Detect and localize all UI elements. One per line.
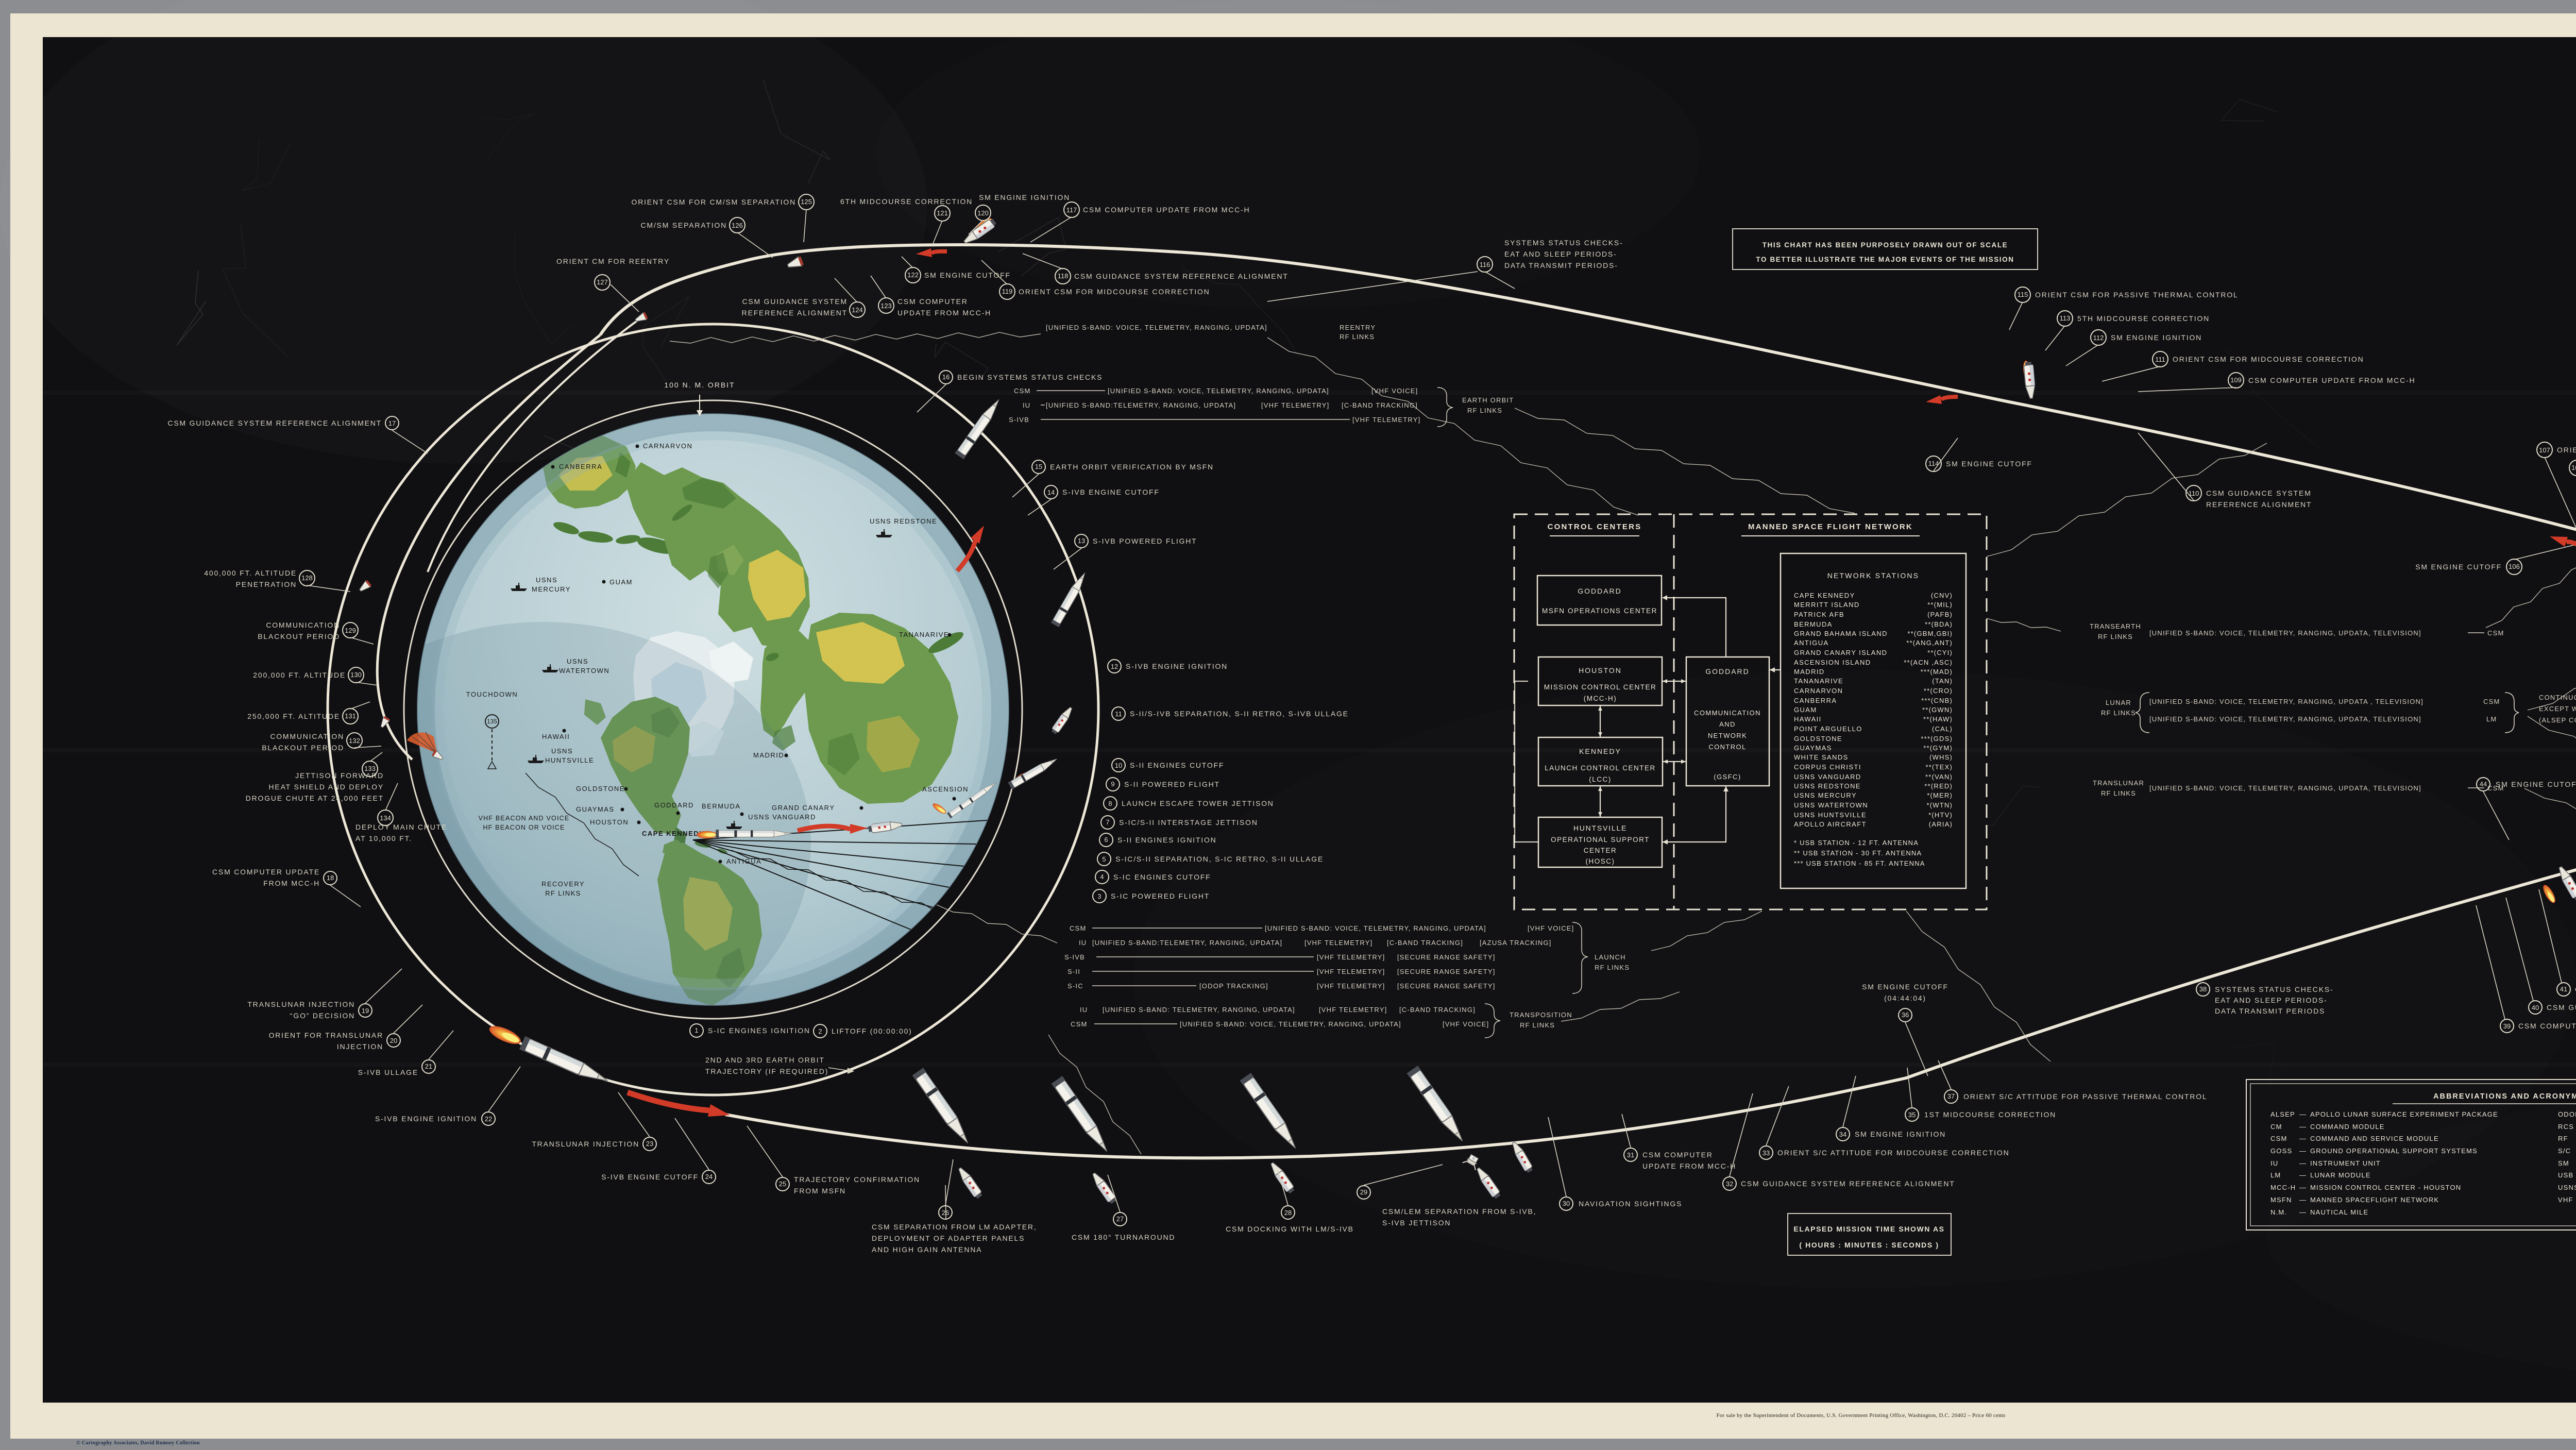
svg-text:[UNIFIED S-BAND:TELEMETRY, RAN: [UNIFIED S-BAND:TELEMETRY, RANGING, UPDA… (1092, 939, 1282, 947)
svg-text:USB: USB (2558, 1171, 2573, 1179)
svg-text:RF LINKS: RF LINKS (2101, 709, 2136, 717)
svg-text:16: 16 (942, 373, 950, 381)
svg-text:USNS VANGUARD: USNS VANGUARD (748, 813, 816, 821)
svg-text:REFERENCE ALIGNMENT: REFERENCE ALIGNMENT (742, 309, 848, 317)
svg-text:CANBERRA: CANBERRA (1794, 697, 1837, 704)
svg-text:20: 20 (390, 1037, 397, 1044)
svg-text:COMMAND AND SERVICE MODULE: COMMAND AND SERVICE MODULE (2310, 1135, 2439, 1142)
svg-text:JETTISON FORWARD: JETTISON FORWARD (295, 771, 384, 780)
svg-text:S-IVB ENGINE CUTOFF: S-IVB ENGINE CUTOFF (1062, 488, 1160, 496)
svg-text:ORIENT CSM FOR PASSIVE THERMAL: ORIENT CSM FOR PASSIVE THERMAL CONTROL (2035, 291, 2239, 299)
svg-text:34: 34 (1839, 1131, 1846, 1138)
svg-text:GODDARD: GODDARD (654, 801, 694, 809)
svg-text:LUNAR: LUNAR (2106, 699, 2131, 706)
svg-text:TRANSEARTH: TRANSEARTH (2090, 622, 2141, 630)
svg-text:***(GDS): ***(GDS) (1921, 735, 1953, 743)
svg-text:GUAYMAS: GUAYMAS (576, 805, 615, 813)
svg-text:TRANSPOSITION: TRANSPOSITION (1510, 1011, 1572, 1019)
svg-text:250,000 FT. ALTITUDE: 250,000 FT. ALTITUDE (247, 712, 340, 720)
svg-text:107: 107 (2539, 446, 2550, 454)
svg-text:GROUND OPERATIONAL SUPPORT SYS: GROUND OPERATIONAL SUPPORT SYSTEMS (2310, 1147, 2478, 1155)
svg-text:S-IC POWERED FLIGHT: S-IC POWERED FLIGHT (1111, 892, 1210, 900)
svg-text:MADRID: MADRID (1794, 668, 1825, 676)
svg-text:[VHF TELEMETRY]: [VHF TELEMETRY] (1352, 416, 1420, 424)
svg-text:33: 33 (1762, 1149, 1770, 1157)
svg-text:RCS: RCS (2558, 1123, 2574, 1131)
svg-text:RECOVERY: RECOVERY (541, 880, 585, 888)
svg-text:5TH MIDCOURSE CORRECTION: 5TH MIDCOURSE CORRECTION (2077, 314, 2210, 323)
svg-text:S-IC: S-IC (1067, 982, 1083, 990)
svg-text:1ST MIDCOURSE CORRECTION: 1ST MIDCOURSE CORRECTION (1924, 1110, 2056, 1119)
svg-text:MISSION CONTROL CENTER - HOUST: MISSION CONTROL CENTER - HOUSTON (2310, 1184, 2461, 1191)
svg-text:[UNIFIED S-BAND: VOICE, TELEME: [UNIFIED S-BAND: VOICE, TELEMETRY, RANGI… (1265, 924, 1486, 932)
svg-text:11: 11 (1115, 710, 1122, 718)
svg-text:CSM GUIDANCE SYSTEM: CSM GUIDANCE SYSTEM (2206, 489, 2312, 497)
svg-text:130: 130 (350, 671, 362, 679)
svg-text:SM ENGINE IGNITION: SM ENGINE IGNITION (2111, 333, 2202, 342)
svg-text:CARNARVON: CARNARVON (1794, 687, 1843, 695)
svg-text:123: 123 (880, 302, 892, 310)
svg-text:COMMUNICATION: COMMUNICATION (1694, 709, 1761, 717)
svg-text:RF LINKS: RF LINKS (1340, 333, 1375, 341)
svg-text:CANBERRA: CANBERRA (559, 463, 602, 470)
svg-text:COMMUNICATION: COMMUNICATION (266, 621, 340, 629)
svg-text:—: — (2299, 1147, 2307, 1155)
svg-text:ELAPSED MISSION TIME SHOWN AS: ELAPSED MISSION TIME SHOWN AS (1793, 1225, 1944, 1233)
svg-text:[VHF TELEMETRY]: [VHF TELEMETRY] (1304, 939, 1372, 947)
svg-text:**(VAN): **(VAN) (1925, 773, 1953, 781)
svg-text:23: 23 (646, 1140, 653, 1148)
svg-text:111: 111 (2155, 356, 2165, 363)
svg-text:ODOP: ODOP (2558, 1110, 2576, 1118)
svg-text:**(HAW): **(HAW) (1923, 715, 1953, 723)
svg-text:APOLLO LUNAR SURFACE EXPERIMEN: APOLLO LUNAR SURFACE EXPERIMENT PACKAGE (2310, 1110, 2498, 1118)
svg-text:USNS WATERTOWN: USNS WATERTOWN (1794, 801, 1868, 809)
svg-text:(LCC): (LCC) (1589, 775, 1612, 783)
svg-text:[C-BAND TRACKING]: [C-BAND TRACKING] (1399, 1006, 1476, 1014)
svg-text:ORIENT FOR TRANSLUNAR: ORIENT FOR TRANSLUNAR (269, 1031, 383, 1039)
svg-text:CSM COMPUTER UPDATE FROM MCC-H: CSM COMPUTER UPDATE FROM MCC-H (2248, 376, 2415, 384)
svg-text:UPDATE FROM MCC-H: UPDATE FROM MCC-H (1642, 1162, 1736, 1170)
svg-text:400,000 FT. ALTITUDE: 400,000 FT. ALTITUDE (204, 569, 297, 577)
svg-text:*** USB STATION - 85 FT. ANTEN: *** USB STATION - 85 FT. ANTENNA (1794, 859, 1925, 867)
svg-text:(GSFC): (GSFC) (1714, 773, 1741, 781)
svg-text:CSM: CSM (1070, 924, 1087, 932)
svg-text:S-IVB: S-IVB (1064, 953, 1085, 961)
svg-text:USNS MERCURY: USNS MERCURY (1794, 791, 1857, 799)
svg-text:NAVIGATION SIGHTINGS: NAVIGATION SIGHTINGS (1579, 1200, 1682, 1208)
svg-text:ORIENT CSM FOR CM/SM SEPARATIO: ORIENT CSM FOR CM/SM SEPARATION (632, 198, 796, 206)
svg-text:[VHF TELEMETRY]: [VHF TELEMETRY] (1317, 982, 1385, 990)
svg-text:—: — (2299, 1196, 2307, 1204)
svg-text:© Cartography Associates, Davi: © Cartography Associates, David Rumsey C… (76, 1440, 200, 1446)
svg-text:10: 10 (1115, 762, 1122, 769)
svg-text:CORPUS CHRISTI: CORPUS CHRISTI (1794, 763, 1861, 771)
svg-text:**(BDA): **(BDA) (1925, 620, 1953, 628)
svg-text:105: 105 (2571, 464, 2576, 471)
svg-text:TANANARIVE: TANANARIVE (1794, 677, 1843, 685)
svg-text:SYSTEMS STATUS CHECKS-: SYSTEMS STATUS CHECKS- (2215, 985, 2333, 993)
svg-text:ORIENT CSM FOR PASSIVE THERMAL: ORIENT CSM FOR PASSIVE THERMAL CONTROL (2557, 446, 2576, 454)
svg-text:135: 135 (487, 718, 497, 725)
svg-text:**(GWN): **(GWN) (1922, 706, 1953, 714)
svg-text:IU: IU (1023, 401, 1030, 409)
svg-text:24: 24 (705, 1173, 713, 1181)
svg-text:MCC-H: MCC-H (2270, 1184, 2296, 1191)
svg-text:CSM: CSM (2487, 629, 2504, 637)
svg-text:FROM MCC-H: FROM MCC-H (263, 879, 320, 887)
svg-text:CSM GUIDANCE SYSTEM REFERENCE: CSM GUIDANCE SYSTEM REFERENCE ALIGNMENT (167, 419, 382, 427)
svg-text:[VHF VOICE]: [VHF VOICE] (1528, 924, 1574, 932)
svg-text:44: 44 (2480, 780, 2487, 788)
svg-text:CSM GUIDANCE SYSTEM REFERENC: CSM GUIDANCE SYSTEM REFERENCE ALIGNMENT (1074, 272, 1289, 280)
svg-text:30: 30 (1563, 1200, 1570, 1207)
svg-text:NAUTICAL MILE: NAUTICAL MILE (2310, 1208, 2368, 1216)
svg-text:28: 28 (1284, 1209, 1292, 1217)
svg-text:USNS: USNS (536, 576, 557, 584)
svg-text:REFERENCE ALIGNMENT: REFERENCE ALIGNMENT (2206, 500, 2312, 509)
svg-text:S-II ENGINES IGNITION: S-II ENGINES IGNITION (1117, 836, 1217, 844)
svg-text:LAUNCH CONTROL CENTER: LAUNCH CONTROL CENTER (1545, 764, 1656, 772)
svg-text:PATRICK AFB: PATRICK AFB (1794, 611, 1844, 618)
svg-text:HUNTSVILLE: HUNTSVILLE (545, 756, 594, 764)
svg-text:ALSEP: ALSEP (2270, 1110, 2295, 1118)
svg-text:SM ENGINE CUTOFF: SM ENGINE CUTOFF (2415, 563, 2502, 571)
svg-text:LM: LM (2486, 715, 2497, 723)
svg-text:CSM: CSM (1014, 387, 1031, 395)
svg-text:[UNIFIED S-BAND: VOICE, TELEME: [UNIFIED S-BAND: VOICE, TELEMETRY, RANGI… (2149, 629, 2421, 637)
svg-text:EXCEPT WHEN MASKED BY MOON —: EXCEPT WHEN MASKED BY MOON — (2539, 705, 2576, 713)
svg-text:22: 22 (485, 1115, 492, 1123)
svg-text:(ARIA): (ARIA) (1929, 820, 1953, 828)
svg-text:31: 31 (1627, 1151, 1634, 1159)
svg-text:IU: IU (1080, 1006, 1088, 1014)
svg-text:ORIENT S/C ATTITUDE FOR PASSIV: ORIENT S/C ATTITUDE FOR PASSIVE THERMAL … (1963, 1092, 2208, 1101)
svg-text:BLACKOUT PERIOD: BLACKOUT PERIOD (258, 632, 340, 640)
svg-text:SM ENGINE CUTOFF: SM ENGINE CUTOFF (2496, 780, 2576, 788)
svg-text:MERRITT ISLAND: MERRITT ISLAND (1794, 601, 1860, 609)
svg-text:*(MER): *(MER) (1927, 791, 1953, 799)
svg-text:CSM 180° TURNAROUND: CSM 180° TURNAROUND (1072, 1233, 1175, 1241)
svg-text:—: — (2299, 1208, 2307, 1216)
svg-text:—: — (2299, 1171, 2307, 1179)
svg-text:CSM: CSM (1071, 1020, 1088, 1028)
svg-text:CENTER: CENTER (1584, 847, 1617, 854)
svg-text:* USB STATION - 12 FT. ANTE: * USB STATION - 12 FT. ANTENNA (1794, 839, 1919, 847)
svg-text:40: 40 (2532, 1004, 2539, 1011)
svg-text:RF LINKS: RF LINKS (1595, 964, 1630, 971)
svg-text:S-II POWERED FLIGHT: S-II POWERED FLIGHT (1124, 780, 1220, 788)
svg-text:8: 8 (1108, 800, 1112, 807)
svg-text:CSM: CSM (2483, 698, 2500, 705)
svg-text:39: 39 (2503, 1022, 2511, 1030)
svg-text:19: 19 (362, 1007, 369, 1015)
svg-text:TRANSLUNAR INJECTION: TRANSLUNAR INJECTION (532, 1140, 639, 1148)
svg-text:CONTROL CENTERS: CONTROL CENTERS (1548, 522, 1642, 531)
svg-text:GOSS: GOSS (2270, 1147, 2292, 1155)
svg-text:CSM: CSM (2270, 1135, 2287, 1142)
svg-text:CSM/LEM SEPARATION FROM S-IVB,: CSM/LEM SEPARATION FROM S-IVB, (1382, 1207, 1536, 1216)
svg-text:CSM COMPUTER: CSM COMPUTER (1642, 1151, 1713, 1159)
svg-text:[AZUSA TRACKING]: [AZUSA TRACKING] (1480, 939, 1552, 947)
svg-text:VHF: VHF (2558, 1196, 2573, 1204)
svg-text:HUNTSVILLE: HUNTSVILLE (1573, 824, 1627, 832)
svg-text:117: 117 (1066, 206, 1077, 214)
svg-text:USNS HUNTSVILLE: USNS HUNTSVILLE (1794, 811, 1867, 819)
svg-text:DATA TRANSMIT PERIODS: DATA TRANSMIT PERIODS (2215, 1007, 2325, 1015)
svg-text:TRAJECTORY CONFIRMATION: TRAJECTORY CONFIRMATION (794, 1175, 920, 1184)
svg-text:12: 12 (1111, 663, 1118, 670)
svg-text:38: 38 (2199, 985, 2207, 993)
svg-text:—: — (2299, 1159, 2307, 1167)
svg-text:CM: CM (2270, 1123, 2282, 1131)
svg-text:CM/SM SEPARATION: CM/SM SEPARATION (640, 221, 727, 229)
svg-text:CAPE KENNEDY: CAPE KENNEDY (642, 830, 704, 837)
svg-text:SM ENGINE IGNITION: SM ENGINE IGNITION (979, 193, 1070, 201)
svg-text:ORIENT CSM FOR MIDCOURSE CORR: ORIENT CSM FOR MIDCOURSE CORRECTION (2173, 355, 2364, 363)
svg-text:*(HTV): *(HTV) (1928, 811, 1953, 819)
svg-text:29: 29 (1360, 1188, 1367, 1196)
svg-text:AND HIGH GAIN ANTENNA: AND HIGH GAIN ANTENNA (872, 1245, 982, 1254)
svg-text:[UNIFIED S-BAND: TELEMETRY, RA: [UNIFIED S-BAND: TELEMETRY, RANGING, UPD… (1103, 1006, 1295, 1014)
svg-text:ASCENSION: ASCENSION (922, 785, 969, 793)
svg-text:**(CRO): **(CRO) (1924, 687, 1953, 695)
svg-text:COMMUNICATION: COMMUNICATION (270, 732, 344, 740)
svg-text:(WHS): (WHS) (1929, 753, 1953, 761)
svg-text:27: 27 (1116, 1215, 1124, 1223)
svg-text:HOUSTON: HOUSTON (590, 818, 629, 826)
svg-text:S-IC/S-II INTERSTAGE JETTISON: S-IC/S-II INTERSTAGE JETTISON (1119, 818, 1258, 827)
svg-text:CSM COMPUTER UPDATE: CSM COMPUTER UPDATE (212, 868, 320, 876)
svg-text:LM: LM (2270, 1171, 2281, 1179)
svg-text:N.M.: N.M. (2270, 1208, 2287, 1216)
svg-text:LUNAR MODULE: LUNAR MODULE (2310, 1171, 2371, 1179)
svg-text:1: 1 (694, 1026, 698, 1034)
svg-text:—: — (2299, 1184, 2307, 1191)
svg-text:** USB STATION - 30 FT. ANTEN: ** USB STATION - 30 FT. ANTENNA (1794, 849, 1922, 857)
svg-text:—: — (2299, 1123, 2307, 1131)
svg-text:128: 128 (301, 574, 313, 582)
svg-text:CSM DOCKING WITH LM/S-IVB: CSM DOCKING WITH LM/S-IVB (1226, 1225, 1354, 1233)
svg-text:(HOSC): (HOSC) (1586, 857, 1615, 865)
svg-text:119: 119 (1002, 288, 1013, 295)
svg-text:HEAT SHIELD AND DEPLOY: HEAT SHIELD AND DEPLOY (269, 783, 384, 791)
svg-text:**(MIL): **(MIL) (1927, 601, 1953, 609)
svg-text:RF LINKS: RF LINKS (545, 889, 581, 897)
svg-text:GUAM: GUAM (1794, 706, 1817, 714)
svg-text:[VHF VOICE]: [VHF VOICE] (1371, 387, 1418, 395)
svg-text:CSM COMPUTER UPDATE FROM MCC-H: CSM COMPUTER UPDATE FROM MCC-H (1083, 206, 1250, 214)
svg-text:GUAM: GUAM (609, 578, 633, 586)
svg-text:THIS CHART HAS BEEN PURPOSELY: THIS CHART HAS BEEN PURPOSELY DRAWN OUT … (1762, 241, 2008, 249)
svg-text:(CAL): (CAL) (1932, 725, 1953, 733)
svg-text:MANNED SPACEFLIGHT NETWORK: MANNED SPACEFLIGHT NETWORK (2310, 1196, 2439, 1204)
svg-text:[UNIFIED S-BAND:TELEMETRY, RAN: [UNIFIED S-BAND:TELEMETRY, RANGING, UPDA… (1046, 401, 1236, 409)
svg-text:LIFTOFF (00:00:00): LIFTOFF (00:00:00) (832, 1027, 912, 1035)
svg-text:S-II ENGINES CUTOFF: S-II ENGINES CUTOFF (1130, 761, 1224, 769)
svg-text:[VHF TELEMETRY]: [VHF TELEMETRY] (1261, 401, 1329, 409)
svg-text:2: 2 (818, 1027, 822, 1035)
svg-text:[VHF TELEMETRY]: [VHF TELEMETRY] (1317, 968, 1385, 975)
svg-text:CSM COMPUTER UPDATE FROM MCC-H: CSM COMPUTER UPDATE FROM MCC-H (2518, 1022, 2576, 1030)
svg-text:CONTROL: CONTROL (1708, 743, 1746, 751)
svg-text:**(RED): **(RED) (1924, 782, 1953, 790)
svg-text:ORIENT S/C ATTITUDE FOR MIDCOU: ORIENT S/C ATTITUDE FOR MIDCOURSE CORREC… (1777, 1149, 2009, 1157)
svg-text:6TH MIDCOURSE CORRECTION: 6TH MIDCOURSE CORRECTION (840, 197, 973, 206)
svg-text:5: 5 (1102, 855, 1106, 863)
svg-text:132: 132 (349, 737, 360, 745)
svg-text:DEPLOYMENT OF ADAPTER PANELS: DEPLOYMENT OF ADAPTER PANELS (872, 1234, 1025, 1242)
svg-text:116: 116 (1480, 261, 1490, 268)
svg-text:*(WTN): *(WTN) (1926, 801, 1953, 809)
svg-text:36: 36 (1902, 1011, 1909, 1019)
svg-text:18: 18 (327, 874, 334, 882)
svg-text:IU: IU (2270, 1159, 2278, 1167)
svg-text:3: 3 (1097, 892, 1101, 900)
svg-text:**(GYM): **(GYM) (1923, 744, 1953, 752)
svg-text:S-IVB ENGINE IGNITION: S-IVB ENGINE IGNITION (375, 1115, 477, 1123)
svg-text:APOLLO AIRCRAFT: APOLLO AIRCRAFT (1794, 820, 1867, 828)
svg-text:118: 118 (1058, 272, 1069, 280)
svg-text:200,000 FT. ALTITUDE: 200,000 FT. ALTITUDE (253, 671, 346, 679)
svg-text:**(GBM,GBI): **(GBM,GBI) (1907, 630, 1953, 637)
svg-text:USNS REDSTONE: USNS REDSTONE (1794, 782, 1861, 790)
svg-text:[UNIFIED S-BAND: VOICE, TELEME: [UNIFIED S-BAND: VOICE, TELEMETRY, RANGI… (1046, 324, 1267, 331)
svg-text:S-II/S-IVB SEPARATION, S-II RE: S-II/S-IVB SEPARATION, S-II RETRO, S-IVB… (1130, 710, 1349, 718)
svg-text:OPERATIONAL SUPPORT: OPERATIONAL SUPPORT (1551, 836, 1650, 844)
svg-text:129: 129 (345, 627, 356, 634)
svg-text:—: — (2299, 1135, 2307, 1142)
svg-text:WHITE SANDS: WHITE SANDS (1794, 753, 1849, 761)
svg-text:ORIENT CM FOR REENTRY: ORIENT CM FOR REENTRY (556, 257, 670, 265)
svg-text:BLACKOUT PERIOD: BLACKOUT PERIOD (262, 744, 344, 752)
svg-text:INJECTION: INJECTION (337, 1042, 383, 1051)
svg-text:GUAYMAS: GUAYMAS (1794, 744, 1832, 752)
svg-text:112: 112 (2093, 334, 2104, 342)
svg-text:SM ENGINE CUTOFF: SM ENGINE CUTOFF (1946, 460, 2032, 468)
svg-text:S-IC/S-II SEPARATION, S-IC RET: S-IC/S-II SEPARATION, S-IC RETRO, S-II U… (1115, 855, 1324, 863)
svg-text:CSM COMPUTER: CSM COMPUTER (897, 297, 968, 306)
svg-text:( HOURS : MINUTES : SECONDS ): ( HOURS : MINUTES : SECONDS ) (1799, 1241, 1939, 1249)
svg-text:GODDARD: GODDARD (1705, 667, 1750, 676)
svg-text:RF: RF (2558, 1135, 2568, 1142)
svg-text:HOUSTON: HOUSTON (1579, 666, 1622, 675)
svg-text:DEPLOY MAIN CHUTE: DEPLOY MAIN CHUTE (355, 823, 447, 831)
svg-text:15: 15 (1035, 463, 1042, 470)
svg-text:21: 21 (425, 1063, 432, 1070)
svg-text:FROM MSFN: FROM MSFN (794, 1187, 846, 1195)
svg-text:106: 106 (2509, 563, 2520, 570)
svg-text:INSTRUMENT UNIT: INSTRUMENT UNIT (2310, 1159, 2381, 1167)
svg-text:UPDATE FROM MCC-H: UPDATE FROM MCC-H (897, 309, 991, 317)
svg-text:EARTH ORBIT: EARTH ORBIT (1462, 396, 1514, 404)
svg-text:CSM GUIDANCE SYSTEM REFERENCE: CSM GUIDANCE SYSTEM REFERENCE ALIGNMENT (1741, 1179, 1955, 1188)
svg-text:(04:44:04): (04:44:04) (1884, 994, 1926, 1002)
svg-text:**(CYI): **(CYI) (1927, 649, 1953, 656)
svg-text:[UNIFIED S-BAND: VOICE, TELEME: [UNIFIED S-BAND: VOICE, TELEMETRY, RANGI… (2149, 698, 2424, 705)
svg-text:SYSTEMS STATUS CHECKS-: SYSTEMS STATUS CHECKS- (1504, 239, 1623, 247)
svg-text:[SECURE RANGE SAFETY]: [SECURE RANGE SAFETY] (1397, 953, 1496, 961)
svg-text:(ALSEP COVERAGE DURING AND AFT: (ALSEP COVERAGE DURING AND AFTER MISSION… (2539, 716, 2576, 724)
svg-text:131: 131 (345, 712, 356, 720)
svg-text:124: 124 (852, 306, 863, 314)
svg-text:RF LINKS: RF LINKS (1520, 1021, 1555, 1029)
svg-text:134: 134 (380, 814, 391, 822)
svg-text:122: 122 (907, 271, 919, 279)
svg-text:—: — (2299, 1110, 2307, 1118)
svg-text:32: 32 (1726, 1180, 1733, 1188)
svg-text:109: 109 (2230, 376, 2242, 384)
svg-text:SM ENGINE CUTOFF: SM ENGINE CUTOFF (1862, 983, 1948, 991)
svg-text:17: 17 (388, 419, 396, 427)
svg-text:SM ENGINE IGNITION: SM ENGINE IGNITION (1855, 1130, 1946, 1138)
svg-text:S-II: S-II (1067, 968, 1080, 975)
svg-text:(MCC-H): (MCC-H) (1584, 695, 1617, 702)
svg-text:S-IVB: S-IVB (1009, 416, 1029, 424)
svg-text:KENNEDY: KENNEDY (1579, 747, 1621, 755)
svg-text:USNS: USNS (567, 657, 588, 665)
svg-text:**(ANG,ANT): **(ANG,ANT) (1906, 639, 1953, 647)
svg-text:6: 6 (1104, 836, 1108, 844)
svg-text:EARTH ORBIT VERIFICATION BY MS: EARTH ORBIT VERIFICATION BY MSFN (1050, 463, 1214, 471)
svg-text:GRAND BAHAMA ISLAND: GRAND BAHAMA ISLAND (1794, 630, 1888, 637)
svg-text:S-IVB JETTISON: S-IVB JETTISON (1382, 1219, 1451, 1227)
svg-text:CSM GUIDANCE SYSTEM: CSM GUIDANCE SYSTEM (742, 297, 848, 306)
svg-text:HAWAII: HAWAII (542, 733, 570, 740)
svg-text:13: 13 (1078, 537, 1085, 545)
svg-text:S-IVB ENGINE CUTOFF: S-IVB ENGINE CUTOFF (601, 1173, 699, 1181)
svg-text:MSFN OPERATIONS CENTER: MSFN OPERATIONS CENTER (1542, 607, 1657, 615)
svg-text:MSFN: MSFN (2270, 1196, 2292, 1204)
svg-text:USNS: USNS (551, 747, 573, 755)
svg-text:***(MAD): ***(MAD) (1921, 668, 1953, 676)
svg-text:41: 41 (2560, 985, 2567, 993)
svg-text:VHF BEACON AND VOICE: VHF BEACON AND VOICE (479, 815, 570, 822)
svg-text:CARNARVON: CARNARVON (643, 442, 692, 450)
svg-text:GRAND CANARY ISLAND: GRAND CANARY ISLAND (1794, 649, 1887, 656)
svg-text:[VHF TELEMETRY]: [VHF TELEMETRY] (1317, 953, 1385, 961)
svg-text:USNS VANGUARD: USNS VANGUARD (1794, 773, 1861, 781)
svg-text:115: 115 (2018, 291, 2028, 298)
svg-text:4: 4 (1100, 873, 1104, 881)
svg-text:MERCURY: MERCURY (532, 585, 571, 593)
svg-text:25: 25 (779, 1180, 786, 1188)
svg-text:BERMUDA: BERMUDA (702, 802, 741, 810)
svg-text:CSM GUIDANCE SYSTEM REFERENCE: CSM GUIDANCE SYSTEM REFERENCE ALIGNMENT (2547, 1003, 2576, 1011)
svg-text:121: 121 (937, 209, 948, 217)
svg-text:TANANARIVE: TANANARIVE (899, 631, 949, 638)
svg-text:S/C: S/C (2558, 1147, 2571, 1155)
svg-text:BERMUDA: BERMUDA (1794, 620, 1833, 628)
svg-text:MANNED SPACE FLIGHT NETWORK: MANNED SPACE FLIGHT NETWORK (1748, 522, 1913, 531)
svg-text:GOLDSTONE: GOLDSTONE (576, 785, 625, 793)
svg-text:GODDARD: GODDARD (1578, 587, 1622, 595)
svg-text:WATERTOWN: WATERTOWN (559, 667, 609, 675)
svg-text:TOUCHDOWN: TOUCHDOWN (466, 690, 518, 698)
svg-text:USNS REDSTONE: USNS REDSTONE (870, 517, 937, 525)
svg-text:EAT AND SLEEP PERIODS-: EAT AND SLEEP PERIODS- (2215, 996, 2328, 1004)
svg-text:PENETRATION: PENETRATION (236, 580, 297, 588)
svg-text:TRANSLUNAR INJECTION: TRANSLUNAR INJECTION (247, 1000, 355, 1008)
svg-text:GRAND CANARY: GRAND CANARY (772, 804, 835, 812)
svg-text:14: 14 (1047, 488, 1055, 496)
svg-text:S-IVB ULLAGE: S-IVB ULLAGE (358, 1068, 418, 1076)
svg-text:113: 113 (2060, 314, 2071, 322)
svg-text:[UNIFIED S-BAND: VOICE, TELEME: [UNIFIED S-BAND: VOICE, TELEMETRY, RANGI… (2149, 715, 2421, 723)
svg-text:RF LINKS: RF LINKS (2101, 789, 2136, 797)
svg-text:[VHF TELEMETRY]: [VHF TELEMETRY] (1319, 1006, 1387, 1014)
svg-text:***(CNB): ***(CNB) (1921, 697, 1953, 704)
